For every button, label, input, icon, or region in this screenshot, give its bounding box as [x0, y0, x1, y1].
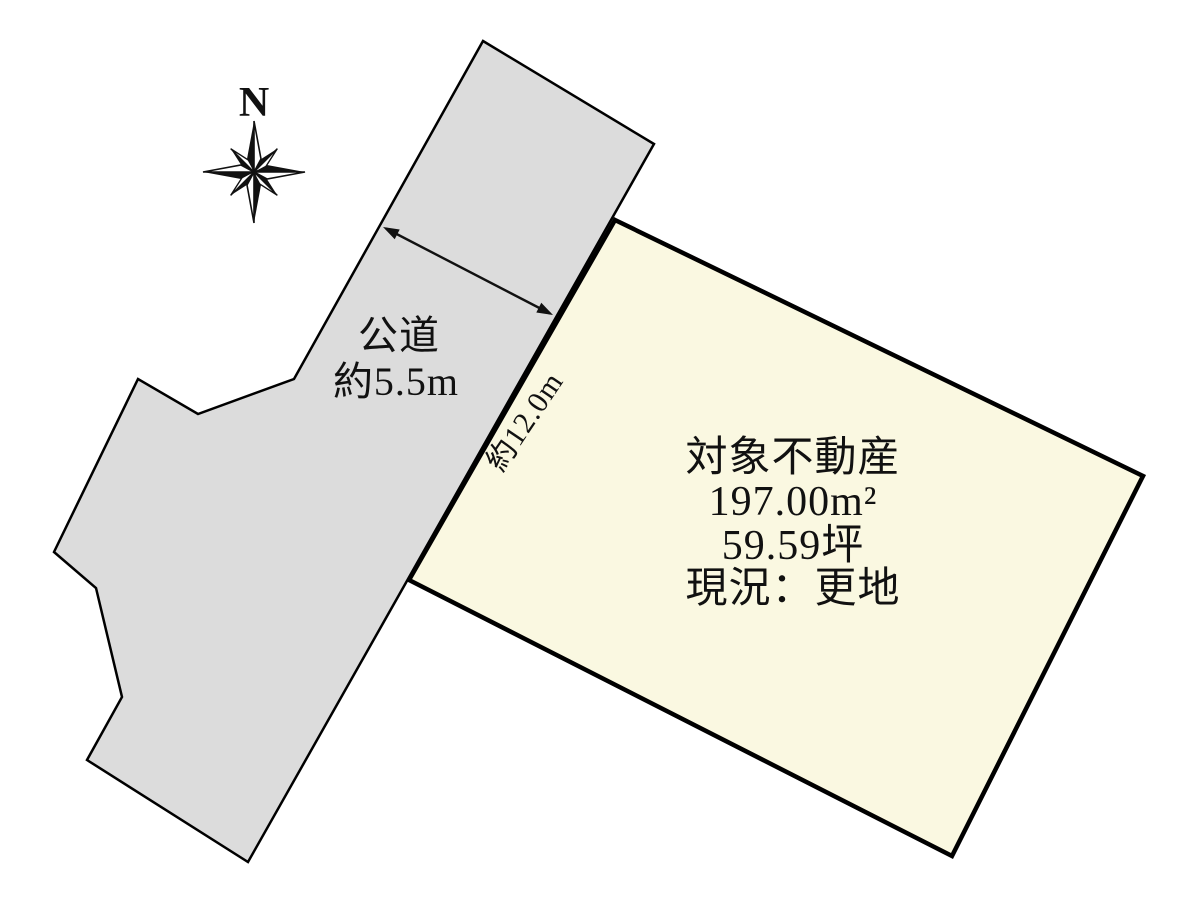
compass-rose-icon: [203, 121, 305, 223]
parcel-area-tsubo-label: 59.59坪: [722, 523, 865, 569]
parcel-title-label: 対象不動産: [685, 435, 900, 481]
parcel-area-sqm-label: 197.00m²: [709, 479, 878, 525]
north-label: N: [239, 80, 269, 126]
road-width-label: 約5.5m: [333, 359, 459, 404]
road-name-label: 公道: [358, 313, 440, 358]
plot-diagram: N 公道 約5.5m 約12.0m 対象不動産 197.00m² 59.59坪 …: [0, 0, 1200, 904]
plot-diagram-canvas: N 公道 約5.5m 約12.0m 対象不動産 197.00m² 59.59坪 …: [0, 0, 1200, 904]
parcel-status-label: 現況：更地: [685, 566, 900, 612]
